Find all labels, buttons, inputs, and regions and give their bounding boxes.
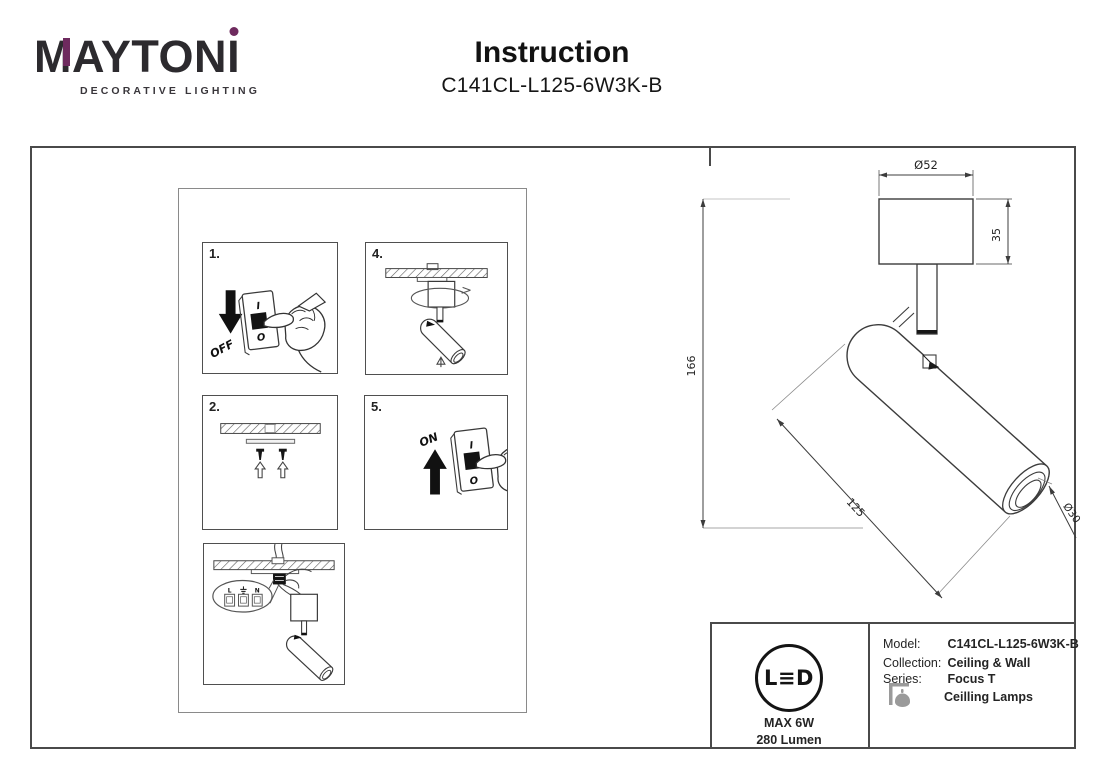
lamp-stem xyxy=(437,307,443,322)
collection-label: Collection: xyxy=(883,656,944,670)
led-logo: L≡D xyxy=(755,644,823,712)
collection-value: Ceiling & Wall xyxy=(947,656,1030,670)
step-3-illustration-wiring: L N xyxy=(204,544,344,684)
step-4-box: 4. xyxy=(365,242,508,375)
lamp-stem xyxy=(302,621,307,635)
spec-table-left-border xyxy=(710,622,712,748)
step-2-number: 2. xyxy=(209,399,220,414)
step-4-illustration-rotate-lamp xyxy=(366,243,507,374)
adjust-arrow-icon xyxy=(437,357,445,367)
dim-52-label: Ø52 xyxy=(914,158,938,172)
luminous-flux: 280 Lumen xyxy=(724,733,854,747)
led-logo-text: L≡D xyxy=(764,666,814,690)
terminal-l-label: L xyxy=(228,588,232,594)
brand-letter-m: M xyxy=(34,34,72,79)
dimension-canopy-diameter: Ø52 xyxy=(879,158,973,196)
lamp-stem xyxy=(917,264,937,334)
series-value: Focus T xyxy=(947,672,995,686)
arrow-up-icon xyxy=(423,449,447,494)
on-label: ON xyxy=(417,429,440,449)
step-1-box: 1. I O OFF xyxy=(202,242,338,374)
lamp-canopy xyxy=(428,281,455,307)
dimension-total-height: 166 xyxy=(685,199,863,528)
step-5-number: 5. xyxy=(371,399,382,414)
instruction-sheet: MAYTONI DECORATIVE LIGHTING Instruction … xyxy=(0,0,1105,779)
series-type-value: Ceilling Lamps xyxy=(944,690,1033,704)
brand-logo: MAYTONI DECORATIVE LIGHTING xyxy=(34,34,262,97)
lamp-tube xyxy=(283,633,335,683)
page-title: Instruction xyxy=(392,36,712,69)
switch-off-label: O xyxy=(256,332,266,344)
step-5-box: 5. ON I O xyxy=(364,395,508,530)
dim-166-label: 166 xyxy=(685,356,698,377)
swivel-bracket xyxy=(893,307,914,327)
brand-letters: AYTON xyxy=(72,31,227,82)
lamp-canopy xyxy=(291,594,318,621)
terminal-n-label: N xyxy=(255,588,260,594)
step-1-number: 1. xyxy=(209,246,220,261)
arrow-down-icon xyxy=(219,290,243,333)
model-value: C141CL-L125-6W3K-B xyxy=(947,637,1078,651)
step-4-number: 4. xyxy=(372,246,383,261)
step-5-illustration-switch-on: ON I O xyxy=(365,396,507,529)
brand-name: MAYTONI xyxy=(34,34,262,79)
spec-table-divider xyxy=(868,622,870,748)
brand-tagline: DECORATIVE LIGHTING xyxy=(34,85,262,97)
screw-icon xyxy=(278,450,288,478)
lamp-canopy xyxy=(879,199,973,264)
technical-drawing: Ø52 35 166 125 Ø30 xyxy=(660,148,1090,622)
terminal-block xyxy=(273,574,286,585)
step-2-illustration-mounting-plate xyxy=(203,396,337,529)
spec-table-top-border xyxy=(710,622,1074,624)
mounting-plate xyxy=(246,439,294,443)
model-number: C141CL-L125-6W3K-B xyxy=(392,74,712,98)
spec-row-model: Model: C141CL-L125-6W3K-B xyxy=(883,637,1079,651)
lamp-tube xyxy=(834,312,1057,521)
terminal-detail: L N xyxy=(225,586,262,606)
max-power: MAX 6W xyxy=(724,716,854,730)
ceiling-lamp-icon xyxy=(886,681,916,711)
dim-125-label: 125 xyxy=(844,496,868,520)
off-label: OFF xyxy=(207,337,236,361)
spec-row-collection: Collection: Ceiling & Wall xyxy=(883,656,1030,670)
spec-row-series-type: Ceilling Lamps xyxy=(944,690,1033,704)
brand-letter-i-with-dot: I xyxy=(227,34,240,79)
screw-icon xyxy=(255,450,265,478)
model-label: Model: xyxy=(883,637,944,651)
step-2-box: 2. xyxy=(202,395,338,530)
step-3-box: L N xyxy=(203,543,345,685)
dimension-canopy-height: 35 xyxy=(976,199,1012,264)
dim-35-label: 35 xyxy=(990,228,1003,242)
header: Instruction C141CL-L125-6W3K-B xyxy=(392,36,712,98)
step-1-illustration-switch-off: I O OFF xyxy=(203,243,337,373)
